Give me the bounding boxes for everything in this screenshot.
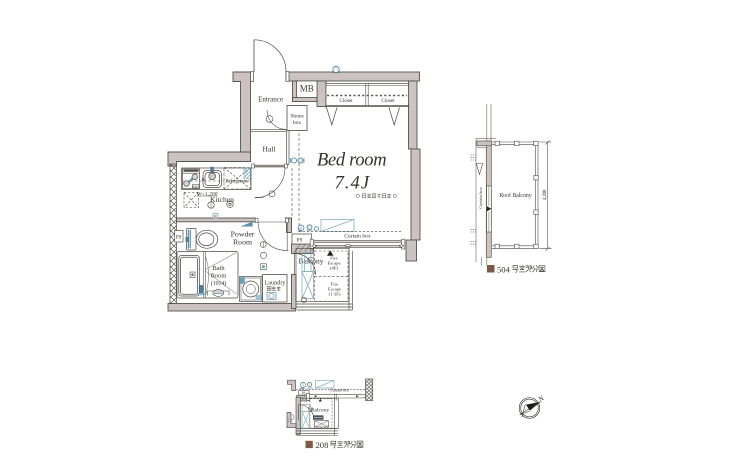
svg-text:Kitchen: Kitchen [210,195,234,204]
svg-text:PS: PS [297,238,303,244]
svg-text:7.4J: 7.4J [335,174,373,194]
svg-text:PS: PS [302,391,306,395]
svg-text:R: R [202,177,205,182]
svg-text:4,200: 4,200 [543,189,548,200]
svg-text:Entrance: Entrance [258,96,283,104]
svg-text:Balcony: Balcony [311,408,330,414]
svg-text:504: 504 [497,265,511,275]
svg-text:Curtain box: Curtain box [344,234,371,240]
svg-text:Room: Room [233,238,252,247]
svg-text:208: 208 [316,440,329,450]
svg-text:(1-3F): (1-3F) [329,292,341,297]
svg-text:box: box [293,120,302,126]
svg-text:Roof Balcony: Roof Balcony [499,192,531,199]
svg-text:Curtain box: Curtain box [478,186,483,209]
svg-text:R: R [214,214,217,219]
svg-text:Bath: Bath [212,265,225,272]
svg-text:Hall: Hall [263,145,276,154]
svg-text:Closet: Closet [339,98,353,104]
svg-text:Closet: Closet [381,98,395,104]
svg-text:Room: Room [211,273,227,280]
svg-text:Shoes: Shoes [290,114,303,120]
svg-text:Laundry: Laundry [265,280,287,287]
svg-text:(4F): (4F) [330,266,338,271]
svg-text:Curtain box: Curtain box [330,388,349,393]
svg-text:Bed room: Bed room [317,151,390,171]
svg-text:(1014): (1014) [211,280,227,287]
svg-text:PS: PS [176,236,182,241]
svg-text:MB: MB [300,84,314,94]
svg-text:Refrigerator: Refrigerator [226,179,250,184]
